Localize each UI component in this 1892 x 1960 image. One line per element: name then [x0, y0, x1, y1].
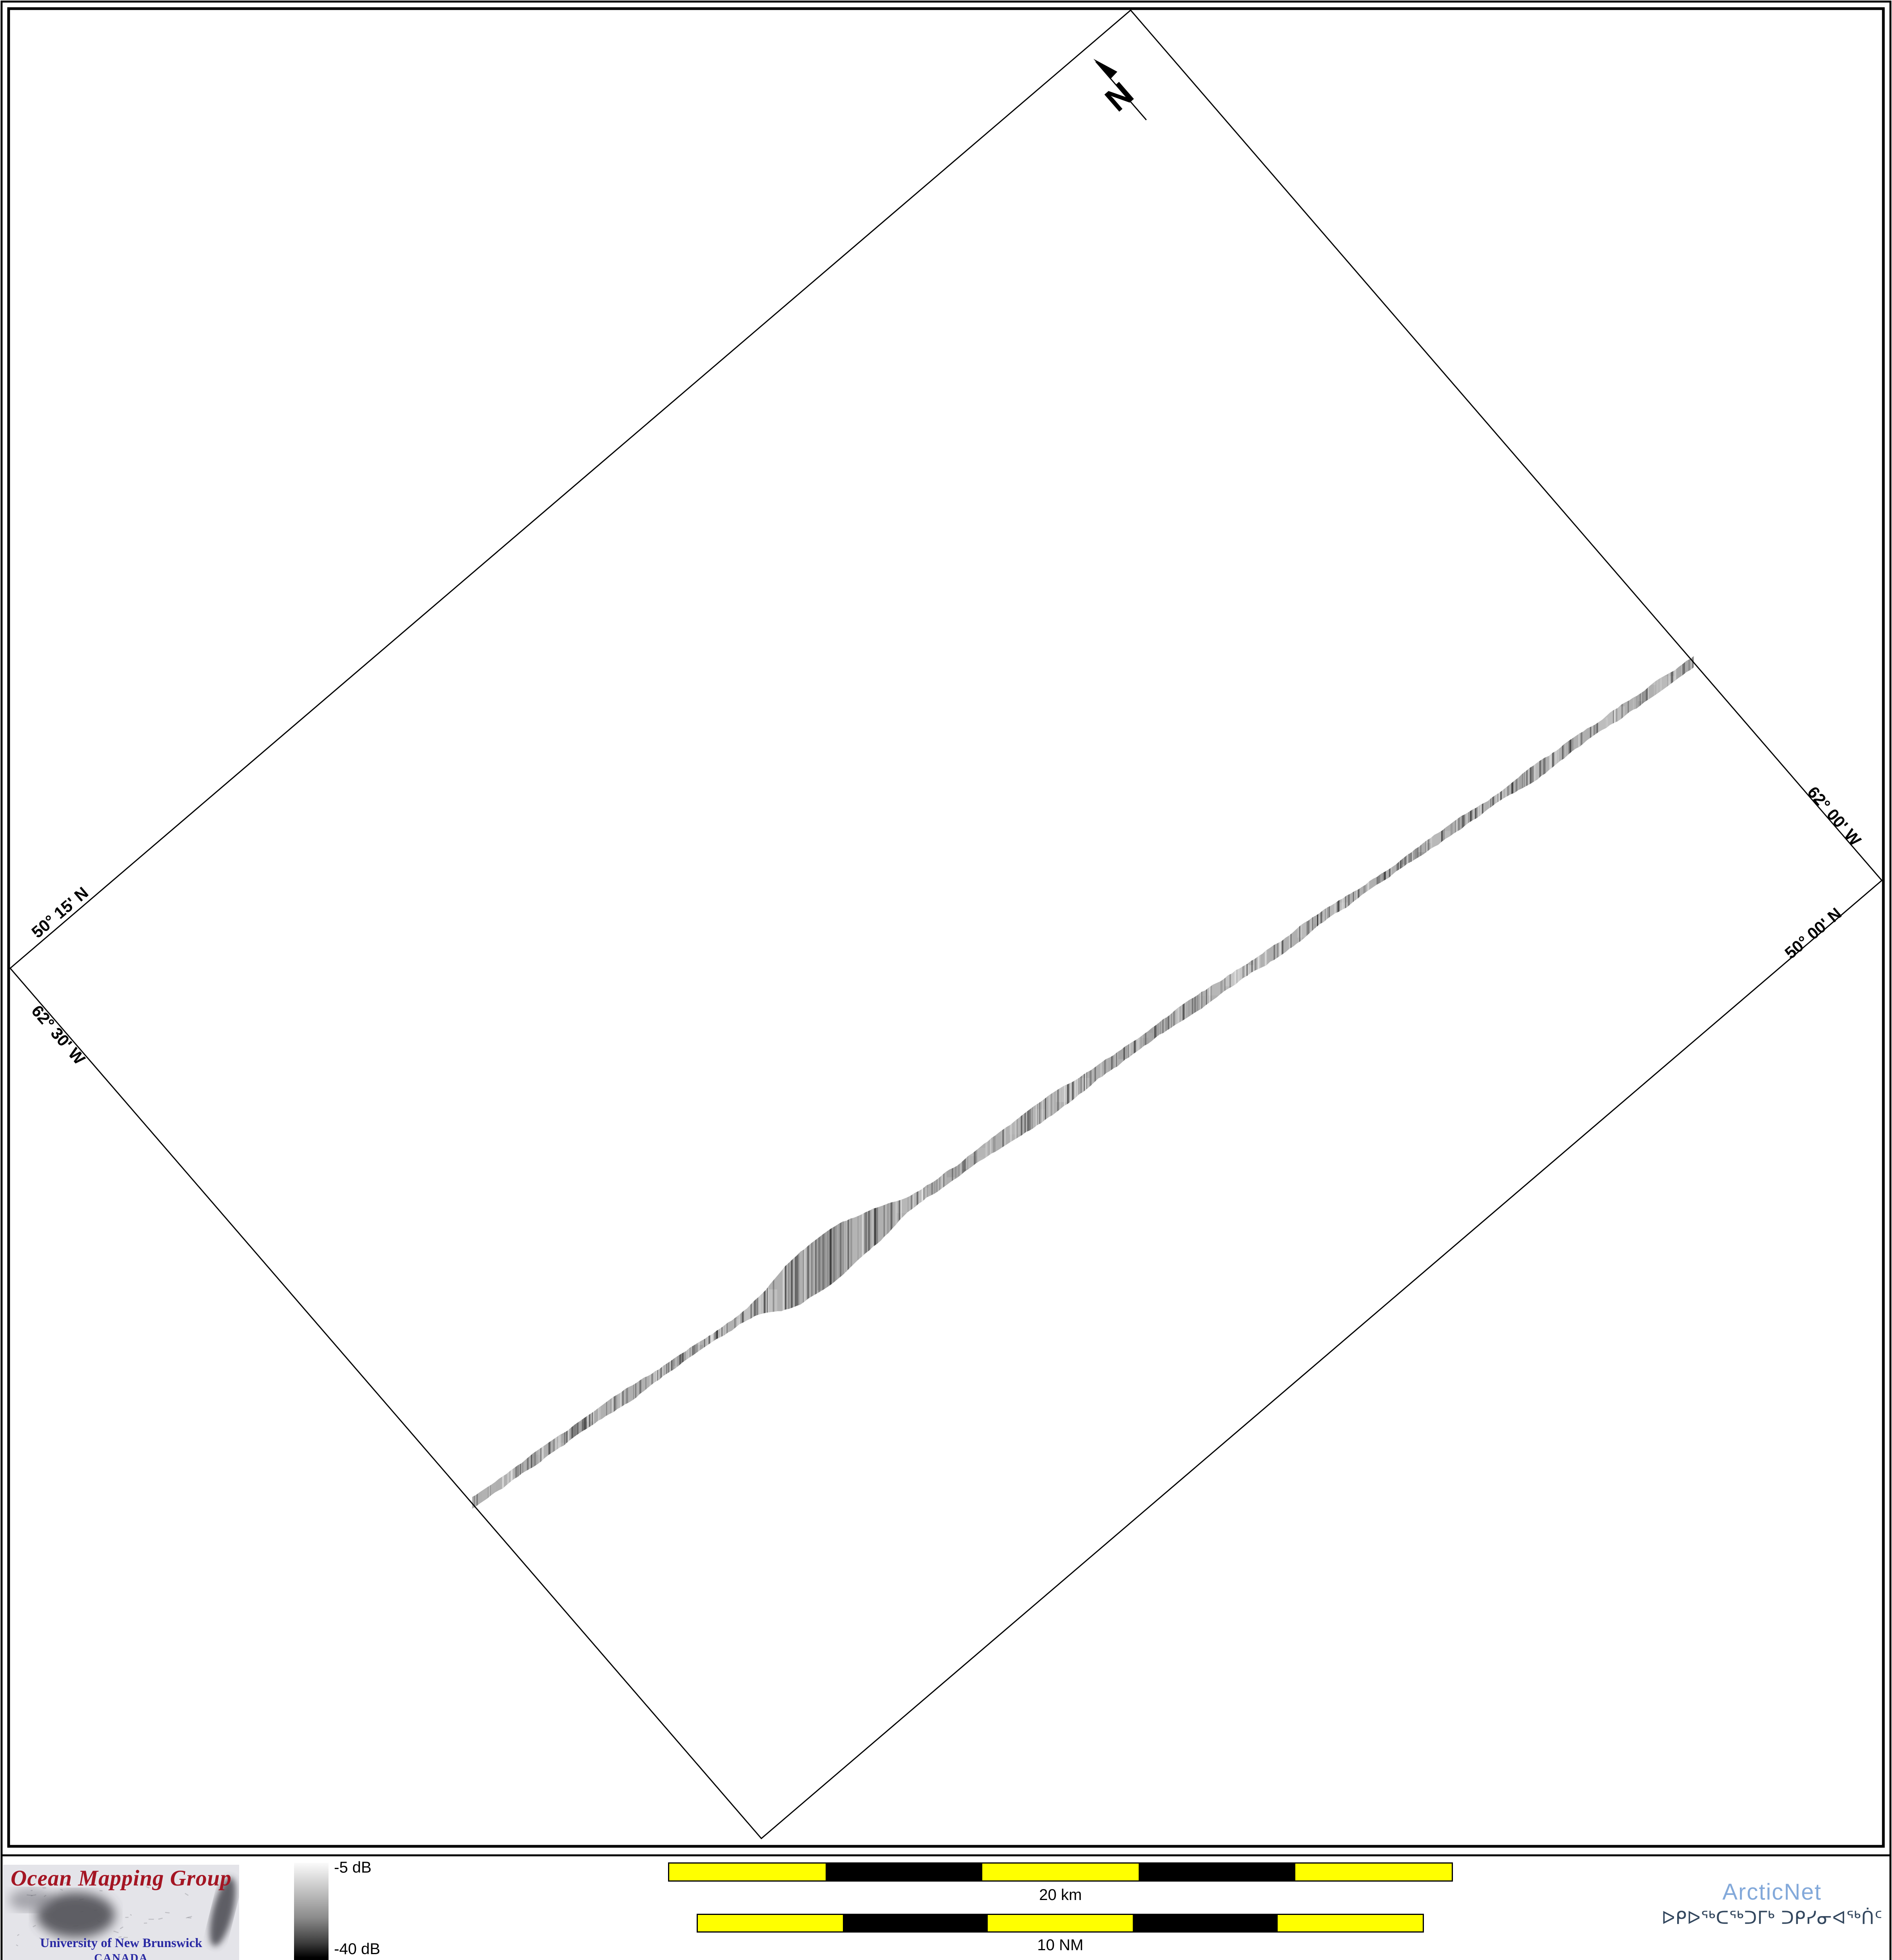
arcticnet-wordmark: ArcticNet	[1639, 1881, 1892, 1904]
scalebar-kilometres	[668, 1862, 1453, 1882]
scalebar-nautical-miles-label: 10 NM	[697, 1936, 1424, 1954]
scalebar-nautical-miles	[697, 1914, 1424, 1933]
logo-shadow-blob-small	[9, 1889, 52, 1911]
map-canvas: 50° 15' N 62° 30' W 62° 00' W 50° 00' N …	[0, 0, 1892, 1960]
basemap-page: 50° 15' N 62° 30' W 62° 00' W 50° 00' N …	[0, 0, 1892, 1960]
arcticnet-inuktitut-text: ᐅᑭᐅᖅᑕᖅᑐᒥᒃ ᑐᑭᓯᓂᐊᖅᑏᑦ	[1639, 1909, 1892, 1927]
scalebar-kilometres-label: 20 km	[668, 1886, 1453, 1904]
colorbar-max-label: -5 dB	[334, 1859, 372, 1877]
omg-logo-title: Ocean Mapping Group	[3, 1866, 239, 1891]
survey-sheet	[10, 10, 1882, 1838]
colorbar-min-label: -40 dB	[334, 1940, 380, 1958]
omg-logo: Ocean Mapping Group University of New Br…	[3, 1865, 239, 1960]
backscatter-colorbar	[294, 1863, 329, 1960]
omg-logo-university: University of New Brunswick	[3, 1936, 239, 1951]
arcticnet-logo: ArcticNet ᐅᑭᐅᖅᑕᖅᑐᒥᒃ ᑐᑭᓯᓂᐊᖅᑏᑦ	[1639, 1881, 1892, 1927]
omg-logo-country: CANADA	[3, 1952, 239, 1960]
